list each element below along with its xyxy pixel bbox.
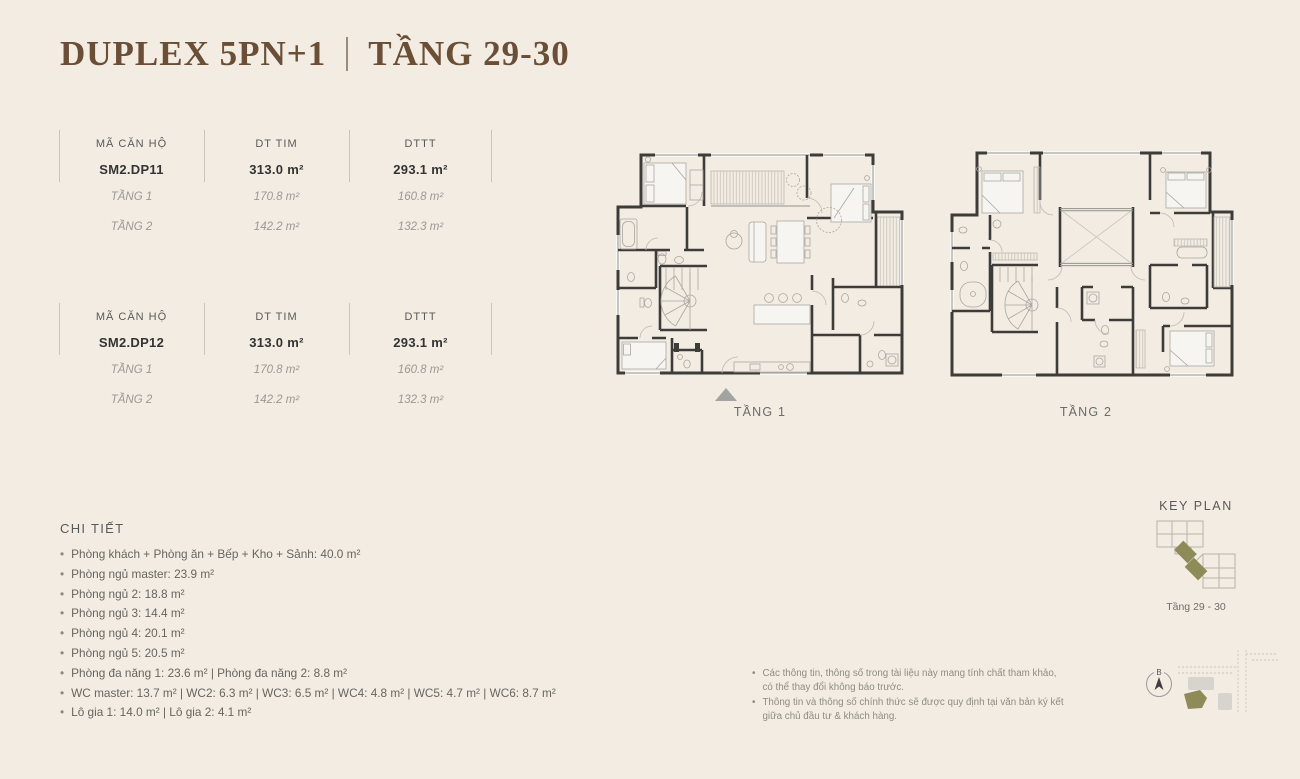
detail-text: WC master: 13.7 m² | WC2: 6.3 m² | WC3: … [71,684,556,704]
floor-dt-tim: 170.8 m² [204,364,349,376]
detail-text: Lô gia 1: 14.0 m² | Lô gia 2: 4.1 m² [71,703,251,723]
detail-item: •Phòng ngủ 4: 20.1 m² [60,624,620,644]
detail-item: •Phòng ngủ master: 23.9 m² [60,565,620,585]
unit-dt-tim: 313.0 m² [204,162,349,177]
unit-table-dp11: MÃ CĂN HỘ DT TIM DTTT SM2.DP11 313.0 m² … [59,130,492,242]
unit-dt-tim: 313.0 m² [204,335,349,350]
detail-item: •Lô gia 1: 14.0 m² | Lô gia 2: 4.1 m² [60,703,620,723]
north-arrow-icon [1155,677,1164,690]
floor-dttt: 132.3 m² [349,221,492,233]
table-floor-row: TẦNG 2 142.2 m² 132.3 m² [59,212,492,242]
map-buildings [1184,677,1232,710]
col-header-code: MÃ CĂN HỘ [59,138,204,150]
detail-item: •Phòng khách + Phòng ăn + Bếp + Kho + Sả… [60,545,620,565]
floor-dttt: 132.3 m² [349,394,492,406]
key-plan-heading: KEY PLAN [1138,499,1254,513]
table-unit-row: SM2.DP11 313.0 m² 293.1 m² [59,157,492,182]
detail-text: Phòng ngủ master: 23.9 m² [71,565,214,585]
floor-name: TẦNG 2 [59,221,204,233]
detail-text: Phòng ngủ 3: 14.4 m² [71,604,184,624]
details-list: •Phòng khách + Phòng ăn + Bếp + Kho + Sả… [60,545,620,723]
brochure-page: DUPLEX 5PN+1 TẦNG 29-30 MÃ CĂN HỘ DT TIM… [0,0,1300,779]
floor-name: TẦNG 2 [59,394,204,406]
detail-text: Phòng khách + Phòng ăn + Bếp + Kho + Sản… [71,545,360,565]
detail-item: •Phòng ngủ 3: 14.4 m² [60,604,620,624]
floor-dt-tim: 170.8 m² [204,191,349,203]
plan2-bed-room6 [1165,331,1214,371]
floor-dttt: 160.8 m² [349,191,492,203]
floor-dt-tim: 142.2 m² [204,394,349,406]
key-plan-section: KEY PLAN [1138,499,1254,513]
table-divider [204,130,205,182]
bullet: • [752,696,755,723]
plan2-bed-room5 [1161,168,1212,208]
floor-dt-tim: 142.2 m² [204,221,349,233]
plan1-bed-room2 [817,176,872,233]
bullet: • [60,703,64,723]
plan1-kitchen [734,294,810,372]
plan1-living-area [726,221,810,263]
bullet: • [60,644,64,664]
unit-dttt: 293.1 m² [349,162,492,177]
detail-item: •Phòng đa năng 1: 23.6 m² | Phòng đa năn… [60,664,620,684]
col-header-dttt: DTTT [349,311,492,323]
title-floor-range: TẦNG 29-30 [368,34,570,74]
detail-item: •WC master: 13.7 m² | WC2: 6.3 m² | WC3:… [60,684,620,704]
col-header-dt-tim: DT TIM [204,311,349,323]
plan1-spiral-staircase [661,267,698,330]
col-header-dttt: DTTT [349,138,492,150]
detail-item: •Phòng ngủ 5: 20.5 m² [60,644,620,664]
floor-name: TẦNG 1 [59,364,204,376]
title-unit-type: DUPLEX 5PN+1 [60,34,326,74]
map-project-highlight [1184,690,1207,709]
table-floor-row: TẦNG 1 170.8 m² 160.8 m² [59,182,492,212]
bullet: • [60,684,64,704]
plan1-bed-room3 [622,342,666,369]
detail-text: Phòng ngủ 4: 20.1 m² [71,624,184,644]
compass-north-label: B [1156,668,1161,677]
bullet: • [60,545,64,565]
table-divider [59,303,60,355]
detail-text: Phòng ngủ 5: 20.5 m² [71,644,184,664]
site-location-map [1176,646,1280,718]
key-plan-caption-wrap: Tầng 29 - 30 [1138,598,1254,613]
detail-text: Phòng đa năng 1: 23.6 m² | Phòng đa năng… [71,664,347,684]
table-unit-row: SM2.DP12 313.0 m² 293.1 m² [59,330,492,355]
bullet: • [752,667,755,694]
table-header-row: MÃ CĂN HỘ DT TIM DTTT [59,130,492,157]
table-divider [491,303,492,355]
detail-text: Phòng ngủ 2: 18.8 m² [71,585,184,605]
details-section: CHI TIẾT •Phòng khách + Phòng ăn + Bếp +… [60,521,620,723]
bullet: • [60,664,64,684]
table-divider [59,130,60,182]
table-divider [349,303,350,355]
note-item: •Các thông tin, thông số trong tài liệu … [752,667,1067,694]
col-header-dt-tim: DT TIM [204,138,349,150]
entrance-marker [715,388,737,401]
bullet: • [60,565,64,585]
page-title: DUPLEX 5PN+1 TẦNG 29-30 [60,34,570,74]
floor-plan-level2 [930,140,1242,390]
bullet: • [60,624,64,644]
plan2-door-arcs [990,202,1184,334]
plan2-void [1060,207,1133,267]
plan-label-level2: TẦNG 2 [930,405,1242,419]
note-item: •Thông tin và thông số chính thức sẽ đượ… [752,696,1067,723]
disclaimer-notes: •Các thông tin, thông số trong tài liệu … [752,667,1067,725]
unit-code: SM2.DP11 [59,162,204,177]
floor-plan-level1 [610,140,910,390]
floor-dttt: 160.8 m² [349,364,492,376]
table-header-row: MÃ CĂN HỘ DT TIM DTTT [59,303,492,330]
floor-name: TẦNG 1 [59,191,204,203]
note-text: Các thông tin, thông số trong tài liệu n… [762,667,1067,694]
plan-label-level1: TẦNG 1 [610,405,910,419]
plan2-bed-room4 [977,167,1023,228]
table-divider [204,303,205,355]
unit-dttt: 293.1 m² [349,335,492,350]
table-floor-row: TẦNG 1 170.8 m² 160.8 m² [59,355,492,385]
note-text: Thông tin và thông số chính thức sẽ được… [762,696,1067,723]
key-plan-caption: Tầng 29 - 30 [1138,601,1254,613]
bullet: • [60,585,64,605]
details-heading: CHI TIẾT [60,521,620,536]
col-header-code: MÃ CĂN HỘ [59,311,204,323]
unit-code: SM2.DP12 [59,335,204,350]
unit-table-dp12: MÃ CĂN HỘ DT TIM DTTT SM2.DP12 313.0 m² … [59,303,492,415]
table-floor-row: TẦNG 2 142.2 m² 132.3 m² [59,385,492,415]
table-divider [349,130,350,182]
title-separator [346,37,348,71]
plan1-bed-master [644,157,703,204]
detail-item: •Phòng ngủ 2: 18.8 m² [60,585,620,605]
bullet: • [60,604,64,624]
compass-north-indicator: B [1142,664,1176,700]
plan2-spiral-staircase [992,265,1038,332]
key-plan-diagram [1150,518,1242,598]
table-divider [491,130,492,182]
